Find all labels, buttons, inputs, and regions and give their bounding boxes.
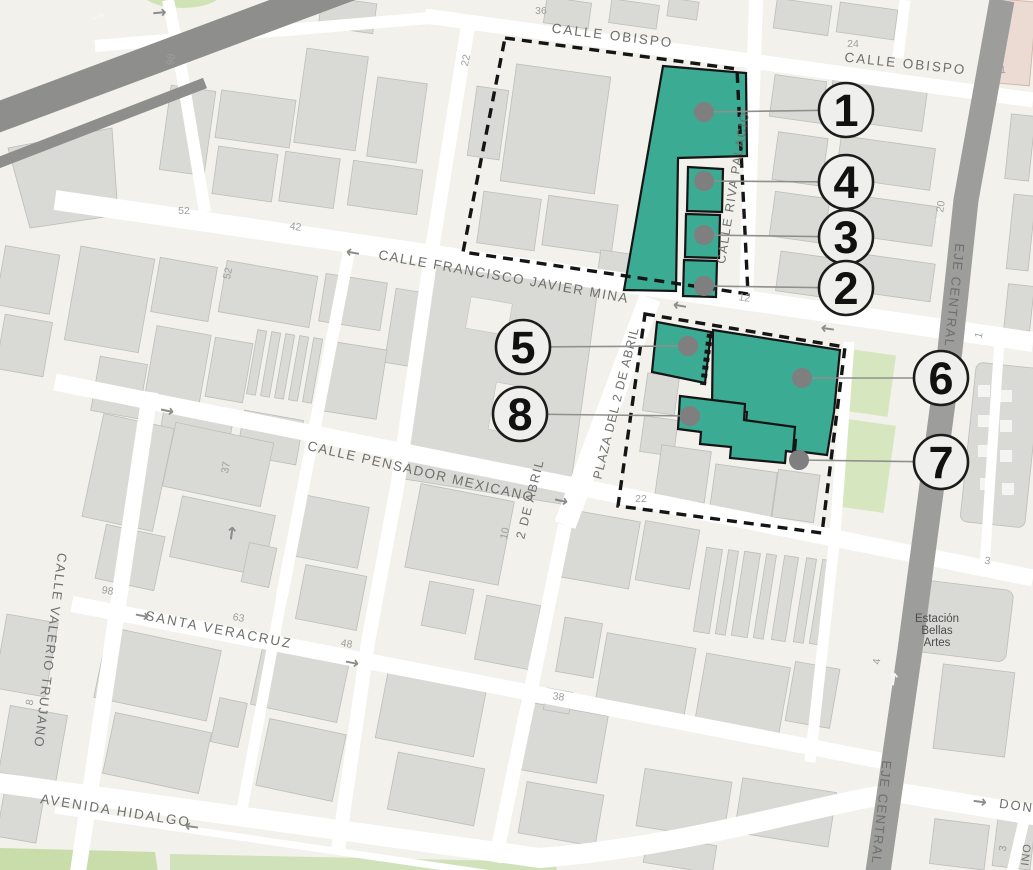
house-number: 98 — [164, 53, 178, 67]
house-number: 37 — [219, 461, 233, 475]
marker-number-6[interactable]: 6 — [928, 353, 953, 404]
house-number: 63 — [232, 611, 246, 625]
building — [978, 385, 990, 397]
building — [933, 664, 1015, 757]
house-number: 42 — [289, 220, 302, 234]
building — [212, 146, 278, 202]
station-label-line: Estación — [915, 613, 959, 625]
house-number: 22 — [635, 493, 647, 505]
building — [929, 819, 989, 870]
building — [635, 521, 700, 590]
house-number: 48 — [340, 637, 354, 651]
oneway-arrow-icon: → — [152, 2, 168, 23]
map-canvas: CALLE OBISPOCALLE OBISPOCALLE FRANCISCO … — [0, 0, 1033, 870]
building — [500, 64, 610, 194]
marker-number-4[interactable]: 4 — [833, 157, 858, 208]
building — [64, 246, 154, 353]
marker-dot-1 — [694, 102, 714, 122]
building — [151, 257, 218, 321]
building — [769, 75, 826, 124]
building — [0, 792, 44, 843]
map: CALLE OBISPOCALLE OBISPOCALLE FRANCISCO … — [0, 0, 1033, 870]
building — [643, 373, 680, 415]
oneway-arrow-icon: ← — [819, 318, 836, 340]
oneway-arrow-icon: → — [883, 671, 905, 688]
building — [294, 48, 369, 151]
house-number: 24 — [847, 38, 859, 50]
station-label-line: Bellas — [921, 625, 953, 637]
building — [477, 191, 542, 251]
house-number: 38 — [552, 690, 565, 704]
street-road — [898, 0, 905, 58]
marker-dot-2 — [694, 276, 714, 296]
building — [1000, 390, 1012, 402]
building — [347, 160, 423, 214]
building — [295, 565, 366, 631]
building — [1004, 284, 1033, 331]
building — [421, 581, 474, 634]
house-number: 36 — [535, 5, 547, 17]
building — [542, 195, 618, 254]
station-label-line: Artes — [924, 637, 951, 649]
building — [319, 273, 388, 330]
marker-dot-4 — [694, 171, 714, 191]
marker-number-3[interactable]: 3 — [833, 212, 858, 263]
house-number: 52 — [178, 205, 190, 217]
building — [215, 90, 296, 148]
oneway-arrow-icon: → — [971, 791, 988, 813]
marker-number-1[interactable]: 1 — [833, 85, 858, 136]
building — [367, 77, 428, 163]
building — [1002, 483, 1014, 495]
house-number: 12 — [738, 291, 751, 305]
house-number: 98 — [101, 584, 115, 598]
marker-number-7[interactable]: 7 — [928, 437, 953, 488]
oneway-arrow-icon: → — [928, 215, 950, 232]
building — [978, 415, 990, 427]
marker-number-5[interactable]: 5 — [510, 322, 535, 373]
building — [279, 151, 340, 208]
marker-number-8[interactable]: 8 — [507, 389, 532, 440]
marker-dot-7 — [789, 450, 809, 470]
marker-dot-8 — [680, 406, 700, 426]
oneway-arrow-icon: ← — [183, 816, 200, 838]
marker-dot-6 — [792, 368, 812, 388]
building — [0, 314, 52, 376]
house-number: 1 — [1000, 64, 1006, 76]
marker-number-2[interactable]: 2 — [833, 263, 858, 314]
oneway-arrow-icon: → — [221, 525, 243, 542]
house-number: 20 — [934, 200, 948, 213]
building — [1000, 420, 1012, 432]
marker-dot-3 — [694, 225, 714, 245]
building — [772, 469, 820, 522]
marker-dot-5 — [678, 336, 698, 356]
building — [1000, 450, 1012, 462]
building — [655, 445, 712, 503]
building — [0, 246, 60, 315]
